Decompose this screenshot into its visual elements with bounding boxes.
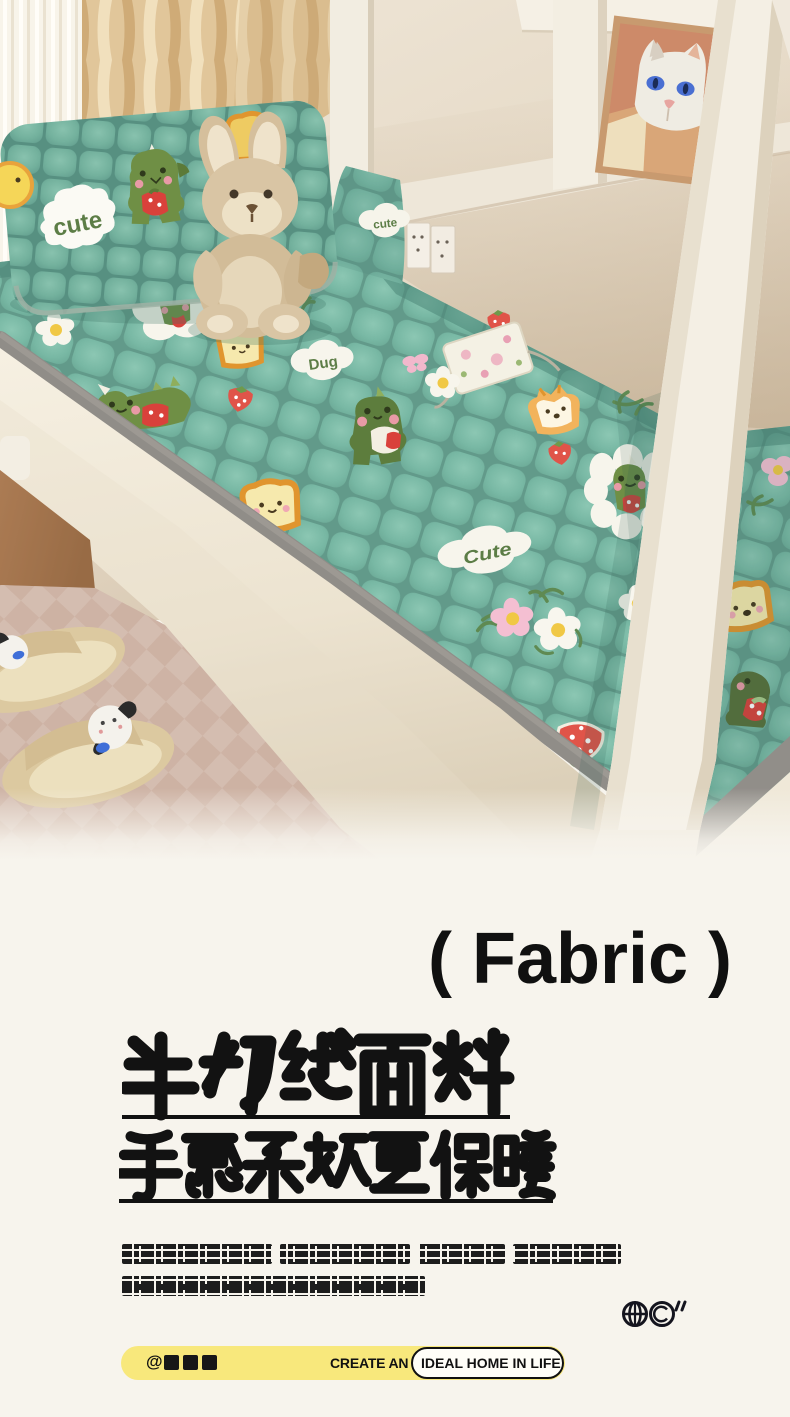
svg-text:cute: cute bbox=[373, 216, 399, 231]
